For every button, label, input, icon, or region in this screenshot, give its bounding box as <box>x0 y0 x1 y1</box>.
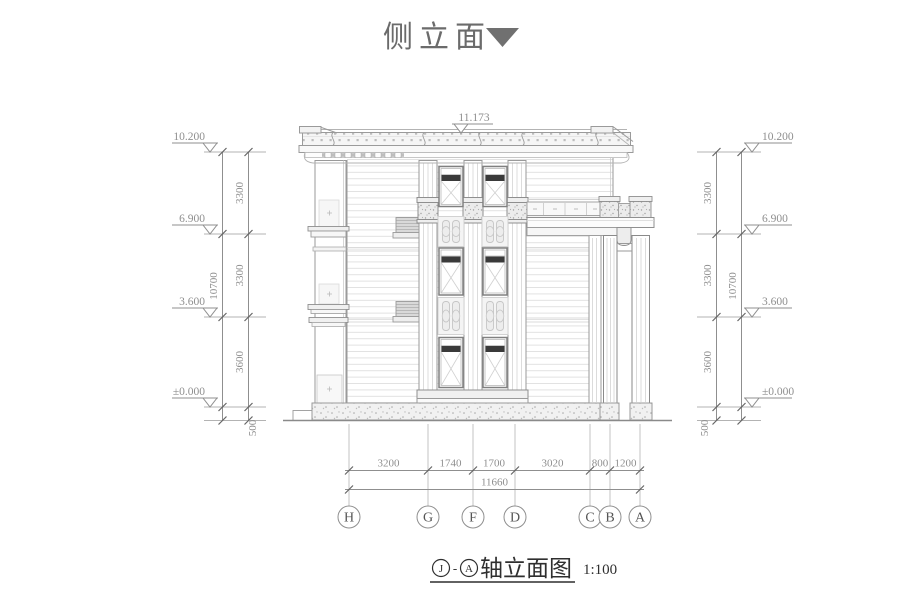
axis-label: A <box>635 511 646 526</box>
right-dimensions: 3300 3300 3600 500 10700 10.200 6.900 3.… <box>697 131 794 436</box>
window <box>439 167 463 207</box>
window-stack-1 <box>438 167 464 388</box>
baluster-panel <box>438 298 464 335</box>
drawing-caption: J - A 轴立面图 1:100 <box>430 555 617 582</box>
elevation-label: 6.900 <box>762 213 788 225</box>
vdim-label: 3300 <box>234 264 246 287</box>
vdim-label: 500 <box>247 419 259 436</box>
axis-label: D <box>510 511 520 526</box>
axis-bubble: G <box>417 506 439 528</box>
caption-axis-to: A <box>465 563 473 575</box>
window <box>483 167 507 207</box>
corner-pilaster <box>589 236 601 404</box>
axis-bubble: D <box>504 506 526 528</box>
vdim-label: 3600 <box>234 351 246 374</box>
right-elevation-marks: 10.200 6.900 3.600 ±0.000 <box>744 131 794 407</box>
porch-beam <box>527 218 654 228</box>
elevation-label: ±0.000 <box>762 386 794 398</box>
vdim-label: 3300 <box>702 264 714 287</box>
cornice <box>299 146 633 153</box>
axis-bubble: H <box>338 506 360 528</box>
baluster-panel <box>438 217 464 247</box>
hdim-label: 3020 <box>542 458 565 470</box>
caption-separator: - <box>453 561 457 576</box>
hdim-total-label: 11660 <box>481 477 509 489</box>
vdim-label: 3600 <box>702 351 714 374</box>
axis-label: B <box>605 511 614 526</box>
vdim-total-label: 10700 <box>208 272 220 300</box>
sheet-title: 侧立面 <box>383 21 519 54</box>
window-stack-2 <box>482 167 508 388</box>
caption-title: 轴立面图 <box>480 555 572 581</box>
axis-label: G <box>423 511 433 526</box>
window <box>483 338 507 388</box>
axis-bubble: B <box>599 506 621 528</box>
window <box>439 338 463 388</box>
left-bay <box>308 161 349 404</box>
hdim-label: 1700 <box>483 458 506 470</box>
elevation-drawing-page: 侧立面 <box>0 0 910 616</box>
building-elevation <box>283 127 672 421</box>
page-title: 侧立面 <box>383 21 491 54</box>
elevation-label: 10.200 <box>173 131 205 143</box>
window <box>439 248 463 295</box>
corbel <box>617 228 631 246</box>
baluster-panel <box>482 298 508 335</box>
baluster-panel <box>482 217 508 247</box>
axis-label: C <box>585 511 594 526</box>
vdim-total-label: 10700 <box>727 272 739 300</box>
window <box>483 248 507 295</box>
vdim-label: 500 <box>699 419 711 436</box>
top-elevation-label: 11.173 <box>458 112 489 124</box>
hdim-label: 3200 <box>378 458 401 470</box>
axis-bubble: C <box>579 506 601 528</box>
elevation-label: 3.600 <box>762 296 788 308</box>
elevation-drawing: 侧立面 <box>0 0 910 616</box>
hdim-label: 1200 <box>615 458 638 470</box>
left-dimensions: 3300 3300 3600 500 10700 10.200 6.900 3.… <box>172 131 266 436</box>
dentil-band <box>322 153 404 158</box>
pilaster-capitals <box>417 198 528 224</box>
vdim-label: 3300 <box>234 182 246 205</box>
axis-label: F <box>469 511 477 526</box>
roof <box>299 127 633 164</box>
axis-bubble: A <box>629 506 651 528</box>
hdim-label: 800 <box>592 458 609 470</box>
axis-label: H <box>344 511 354 526</box>
bottom-dimensions: 3200 1740 1700 3020 800 1200 11660 H G F <box>338 424 651 528</box>
caption-scale: 1:100 <box>583 562 617 578</box>
hdim-label: 1740 <box>440 458 463 470</box>
elevation-label: 6.900 <box>179 213 205 225</box>
axis-bubble: F <box>462 506 484 528</box>
axis-bubbles: H G F D C B A <box>338 506 651 528</box>
left-elevation-marks: 10.200 6.900 3.600 ±0.000 <box>172 131 218 407</box>
stack-pilasters <box>417 161 528 404</box>
porch-parapet <box>527 202 601 216</box>
caption-axis-from: J <box>439 563 444 575</box>
elevation-label: 3.600 <box>179 296 205 308</box>
elevation-label: 10.200 <box>762 131 794 143</box>
elevation-label: ±0.000 <box>173 386 205 398</box>
plinth <box>283 403 672 421</box>
vdim-label: 3300 <box>702 182 714 205</box>
